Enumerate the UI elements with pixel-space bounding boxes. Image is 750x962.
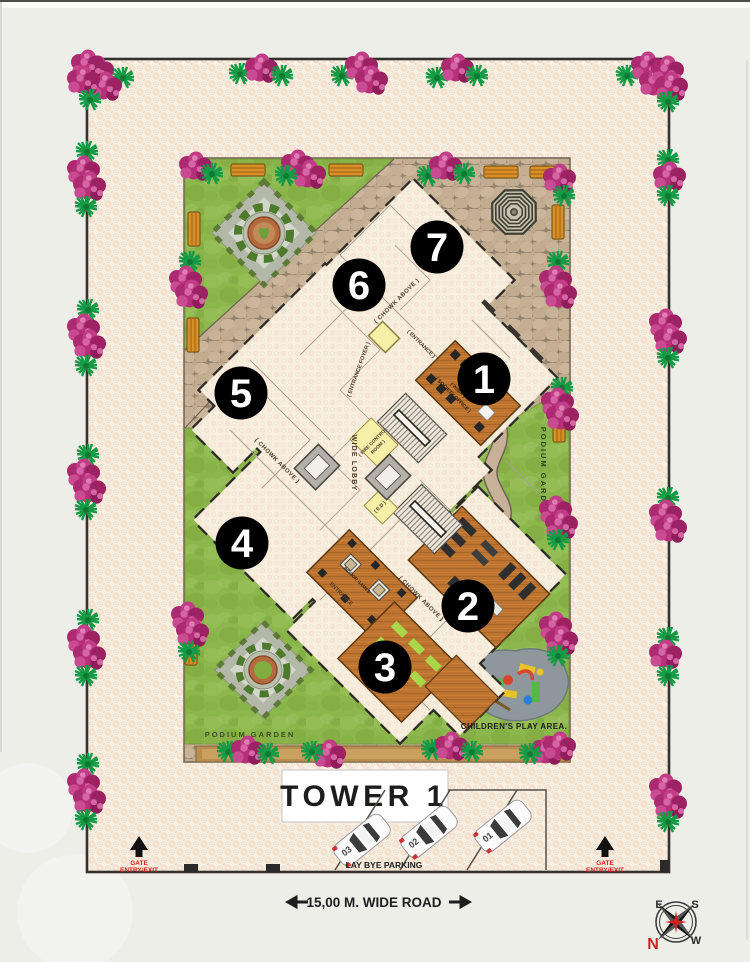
svg-text:TOWER 1: TOWER 1 — [280, 780, 448, 813]
svg-text:CHILDREN'S PLAY AREA.: CHILDREN'S PLAY AREA. — [461, 722, 567, 731]
svg-text:4: 4 — [231, 522, 254, 566]
svg-text:WIDE LOBBY: WIDE LOBBY — [350, 435, 357, 492]
svg-text:N: N — [647, 936, 659, 953]
svg-text:ENTRY/EXIT: ENTRY/EXIT — [120, 867, 158, 874]
svg-text:2: 2 — [457, 585, 479, 629]
svg-text:S: S — [691, 899, 698, 911]
svg-text:5: 5 — [230, 372, 252, 416]
svg-text:W: W — [691, 935, 702, 947]
svg-text:LAY BYE PARKING: LAY BYE PARKING — [346, 860, 423, 870]
svg-text:ENTRY/EXIT: ENTRY/EXIT — [586, 867, 624, 874]
svg-text:15,00 M. WIDE ROAD: 15,00 M. WIDE ROAD — [306, 895, 441, 910]
svg-text:GATE: GATE — [130, 860, 148, 867]
svg-text:7: 7 — [426, 226, 448, 270]
svg-text:1: 1 — [473, 358, 495, 402]
svg-text:3: 3 — [374, 646, 396, 690]
svg-text:GATE: GATE — [596, 860, 614, 867]
svg-text:E: E — [655, 899, 662, 911]
svg-text:6: 6 — [348, 264, 370, 308]
